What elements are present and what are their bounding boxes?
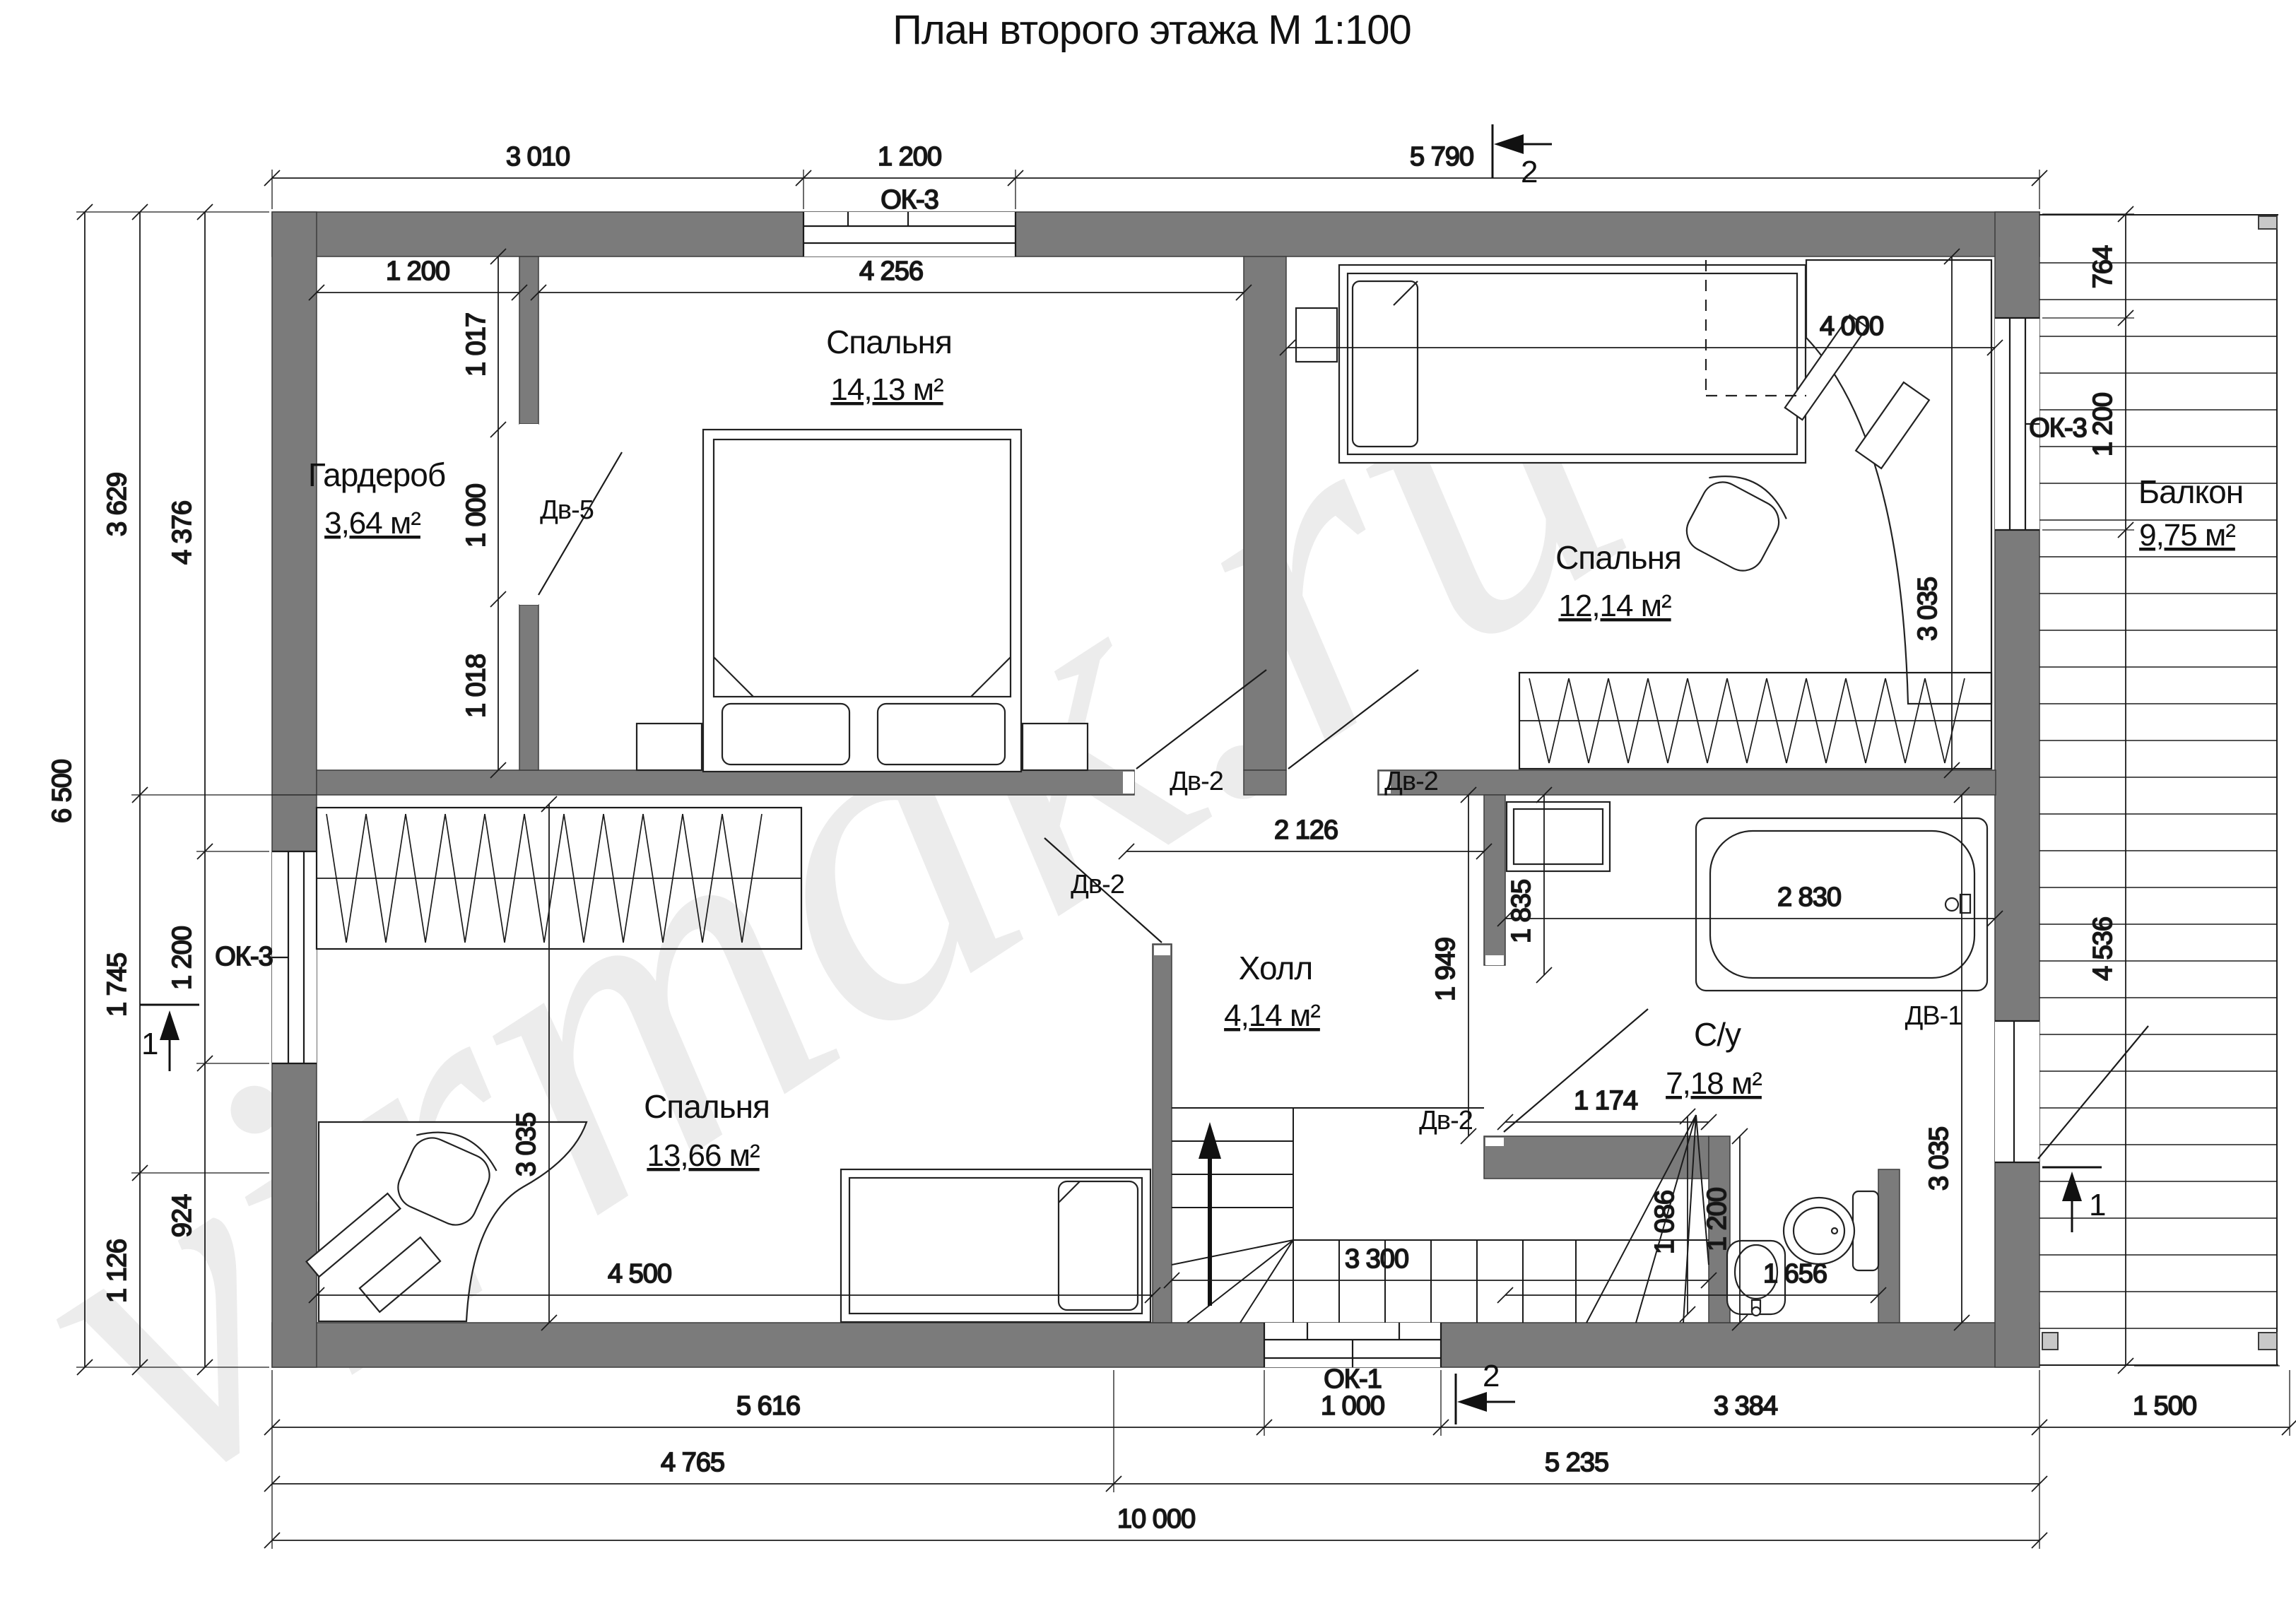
dim-label: 1 200 (2088, 393, 2118, 456)
dim-label: 3 035 (1913, 577, 1943, 641)
dim-garderob: 1 017 1 000 1 018 (461, 249, 506, 778)
room-area-bedroom-top: 14,13 м² (830, 372, 943, 407)
section-2-top: 2 (1493, 124, 1552, 189)
dim-label: 1 126 (102, 1239, 132, 1303)
window-label-ok3: ОК-3 (2029, 413, 2086, 443)
dim-bottom: 5 616 1 000 3 384 1 500 ОК-1 4 765 5 235… (264, 1364, 2296, 1548)
nightstand (1296, 308, 1337, 362)
dim-label: 3 035 (1924, 1127, 1954, 1191)
nightstand (637, 724, 702, 770)
room-name-balcony: Балкон (2138, 473, 2243, 510)
wall-h1-right (1378, 770, 1996, 795)
section-label: 2 (1483, 1359, 1500, 1393)
room-area-balcony: 9,75 м² (2139, 518, 2235, 553)
dim-label: 2 830 (1777, 883, 1841, 912)
dim-label: 1 000 (461, 484, 491, 548)
dim-label: 4 376 (167, 501, 197, 565)
floor-plan-page: virmak.ru План второго этажа М 1:100 (0, 0, 2296, 1611)
dim-label: 5 235 (1545, 1448, 1608, 1477)
dim-label: 1 200 (878, 142, 941, 172)
room-area-garderob: 3,64 м² (324, 506, 420, 541)
bathtub (1696, 818, 1987, 991)
dim-label: 4 536 (2088, 917, 2118, 981)
room-name-bedroom-right: Спальня (1555, 539, 1681, 576)
room-area-bathroom: 7,18 м² (1666, 1066, 1762, 1101)
room-name-hall: Холл (1239, 950, 1312, 986)
wall-h1-left (317, 770, 1134, 795)
wall-h1-stub (1244, 770, 1286, 795)
dim-label: 1 200 (167, 926, 197, 990)
balcony-posts (2042, 216, 2277, 1350)
dim-label: 4 000 (1820, 312, 1883, 341)
dim-right: 764 1 200 4 536 ОК-3 (2029, 206, 2133, 1374)
dim-label: 5 790 (1410, 142, 1473, 172)
window-label-ok3: ОК-3 (881, 185, 938, 215)
dim-label: 3 629 (102, 473, 132, 536)
wall-bath-low (1484, 1136, 1709, 1179)
section-1-right: 1 (2042, 1167, 2106, 1232)
door-label-dv1: ДВ-1 (1905, 1001, 1962, 1031)
wall-left (272, 212, 317, 1367)
window-label-ok3: ОК-3 (215, 942, 272, 972)
wall-bedrooms (1244, 256, 1286, 770)
dim-label: 924 (167, 1194, 197, 1237)
section-label: 1 (141, 1027, 158, 1061)
door-label-dv2-bedroom3: Дв-2 (1071, 870, 1124, 899)
dim-label: 3 384 (1714, 1391, 1778, 1421)
dim-label: 2 126 (1274, 815, 1338, 845)
door-label-dv2-bedroom2: Дв-2 (1384, 767, 1438, 796)
dim-label: 1 500 (2133, 1391, 2196, 1421)
dim-label: 1 017 (461, 313, 491, 377)
bed-double (703, 430, 1021, 772)
section-label: 2 (1521, 155, 1538, 189)
washing-machine (1507, 802, 1610, 871)
wall-bottom (272, 1323, 2039, 1367)
bed-single-top (1339, 265, 1806, 463)
dim-label: 10 000 (1117, 1504, 1195, 1534)
dim-label: 1 000 (1321, 1391, 1384, 1421)
room-area-bedroom-right: 12,14 м² (1558, 589, 1671, 623)
dim-label: 1 086 (1650, 1191, 1680, 1254)
stairs-up-arrow (1199, 1122, 1221, 1306)
wall-hall-bath (1484, 795, 1505, 965)
balcony-post (2259, 216, 2277, 229)
dim-label: 1 656 (1763, 1259, 1827, 1289)
room-area-hall: 4,14 м² (1224, 998, 1320, 1033)
balcony-post (2042, 1333, 2058, 1350)
room-name-garderob: Гардероб (308, 456, 445, 493)
dim-label: 1 200 (386, 256, 449, 286)
dim-label: 1 018 (461, 654, 491, 718)
dim-label: 3 010 (506, 142, 570, 172)
dim-label: 1 949 (1431, 938, 1461, 1001)
dim-label: 3 300 (1345, 1244, 1408, 1274)
nightstand (1023, 724, 1088, 770)
dim-label: 1 200 (1702, 1188, 1732, 1251)
dim-label: 1 174 (1574, 1086, 1638, 1116)
wall-bedroom3-hall (1153, 944, 1172, 1323)
dim-label: 6 500 (47, 760, 77, 823)
door-label-dv2-bedroom1: Дв-2 (1170, 767, 1223, 796)
dim-label: 4 256 (859, 256, 923, 286)
office-chair (1677, 463, 1794, 579)
dim-label: 4 500 (608, 1259, 671, 1289)
door-leaf-dv1 (2038, 1026, 2148, 1159)
dim-top: 3 010 1 200 5 790 ОК-3 (264, 142, 2047, 215)
wall-garderob-b (519, 605, 538, 770)
room-name-bathroom: С/у (1694, 1016, 1741, 1053)
wall-toilet-niche (1878, 1169, 1900, 1323)
section-2-bottom: 2 (1456, 1359, 1515, 1424)
door-label-dv2-bathroom: Дв-2 (1419, 1106, 1473, 1135)
balcony-post (2259, 1333, 2277, 1350)
section-label: 1 (2089, 1188, 2106, 1222)
door-label-dv5: Дв-5 (540, 495, 594, 525)
bed-single-bottom (841, 1169, 1150, 1322)
room-area-bedroom-bottom: 13,66 м² (647, 1138, 760, 1173)
dim-label: 764 (2088, 245, 2118, 288)
dim-label: 3 035 (512, 1113, 541, 1176)
room-name-bedroom-top: Спальня (826, 324, 952, 360)
page-title: План второго этажа М 1:100 (893, 7, 1411, 53)
dim-label: 5 616 (736, 1391, 800, 1421)
dim-label: 4 765 (661, 1448, 724, 1477)
dim-label: 1 745 (102, 953, 132, 1017)
wall-garderob-a (519, 256, 538, 424)
room-name-bedroom-bottom: Спальня (644, 1088, 770, 1125)
dim-label: 1 835 (1507, 880, 1536, 943)
window-label-ok1: ОК-1 (1324, 1364, 1381, 1394)
wall-top (272, 212, 2039, 256)
